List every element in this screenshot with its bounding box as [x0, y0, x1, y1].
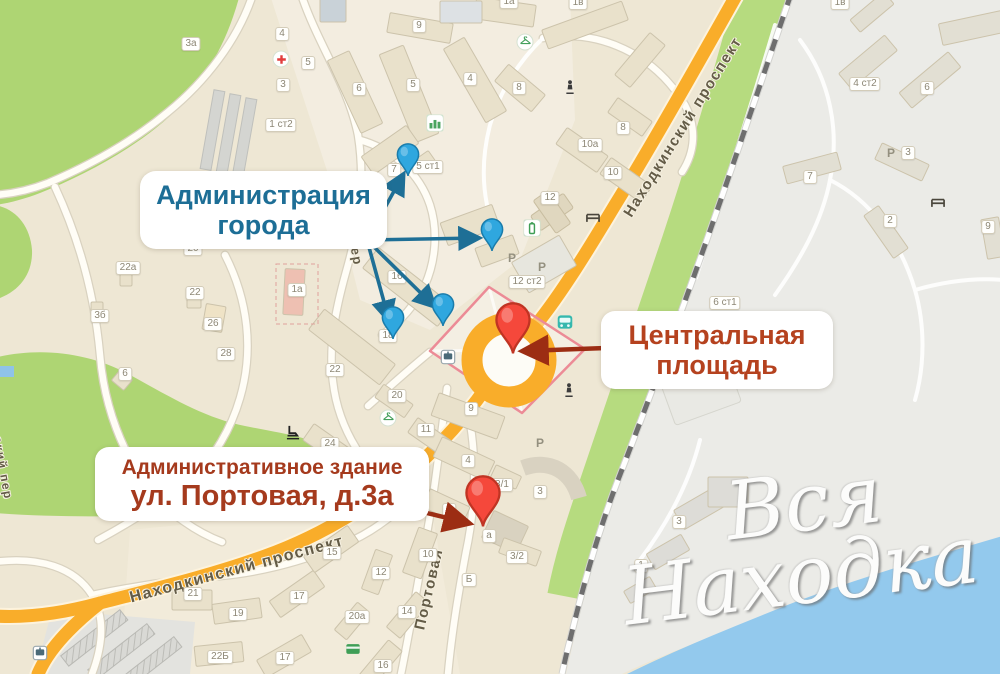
central-square-label: Центральная площадь — [601, 311, 833, 389]
pins-layer — [0, 0, 1000, 674]
label-line: города — [146, 210, 381, 240]
label-line: Администрация — [146, 180, 381, 210]
city-administration-pin[interactable] — [380, 306, 406, 345]
portovaya-building-label: Административное здание ул. Портовая, д.… — [95, 447, 429, 521]
portovaya-3a-pin[interactable] — [463, 475, 503, 533]
city-administration-pin[interactable] — [430, 293, 456, 332]
label-line: Административное здание — [101, 456, 423, 480]
map-canvas[interactable]: Находкинский проспектНаходкинский проспе… — [0, 0, 1000, 674]
city-administration-pin[interactable] — [479, 218, 505, 257]
city-administration-label: Администрация города — [140, 171, 387, 249]
central-square-pin[interactable] — [493, 302, 533, 360]
city-administration-pin[interactable] — [395, 143, 421, 182]
label-line: площадь — [607, 350, 827, 380]
label-line: ул. Портовая, д.3а — [101, 480, 423, 512]
label-line: Центральная — [607, 320, 827, 350]
